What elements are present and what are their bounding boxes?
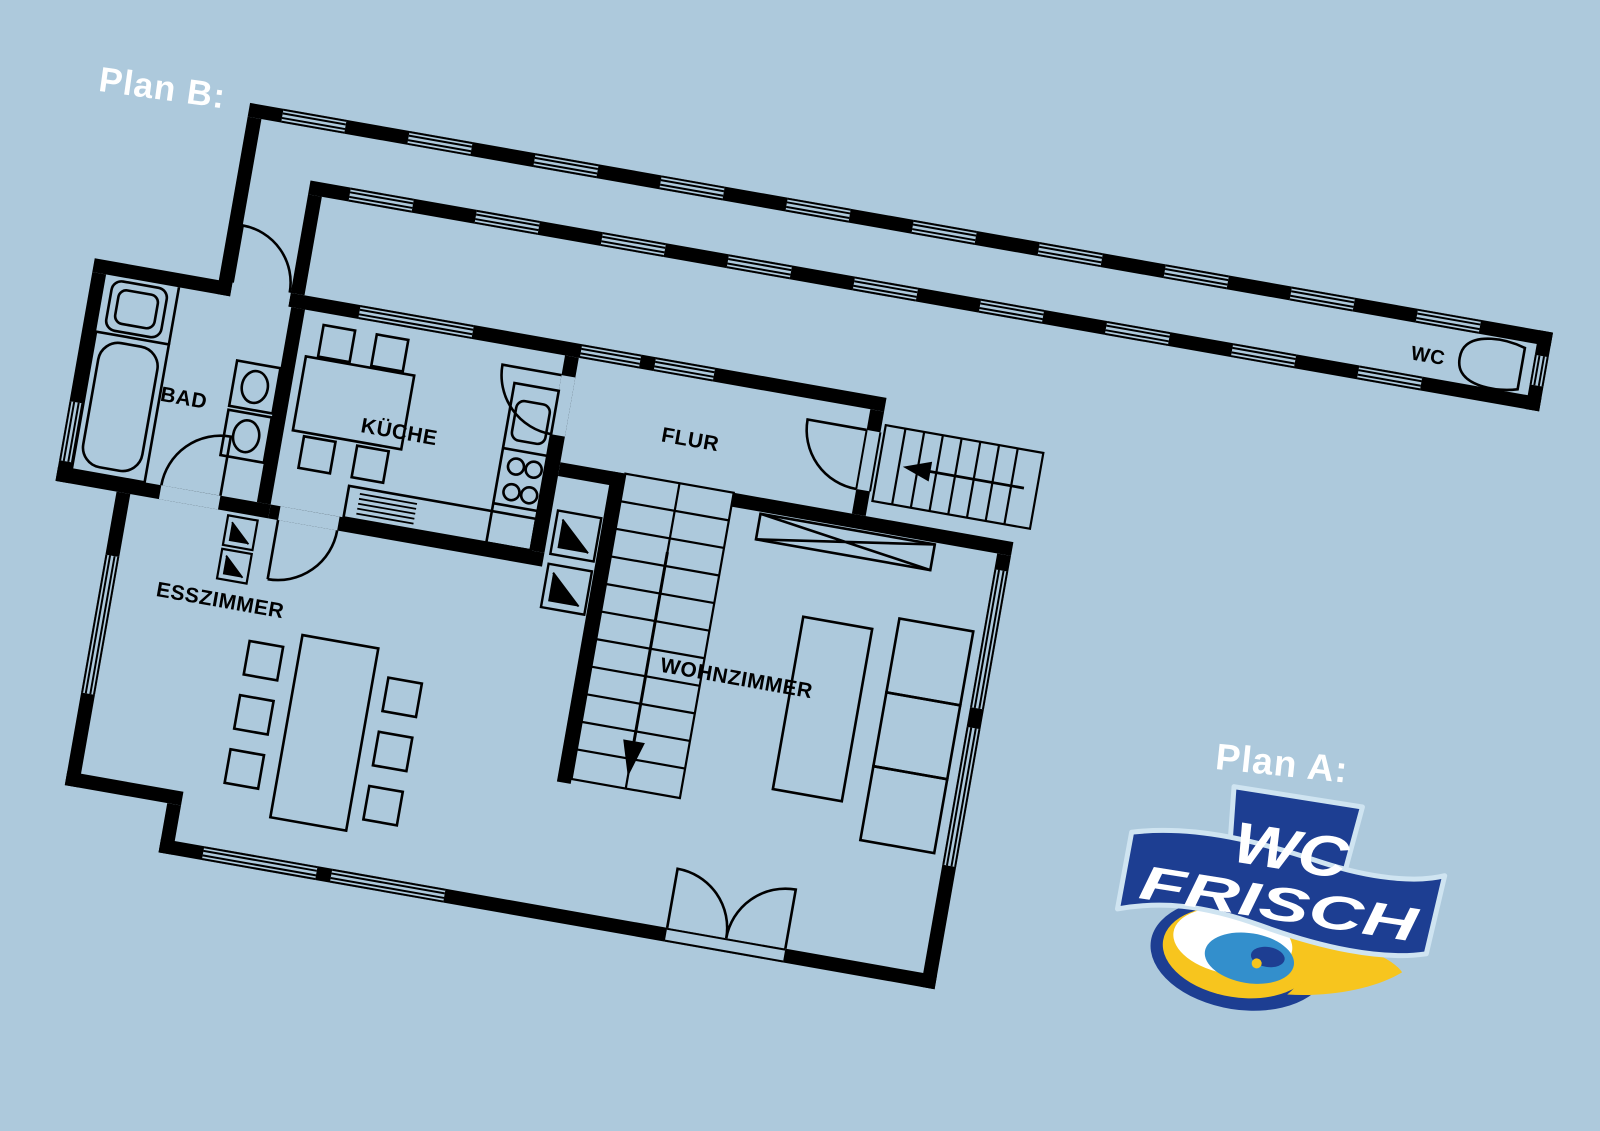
- kitchen-sink: [511, 400, 551, 445]
- washbasin: [105, 280, 169, 339]
- kueche-esszimmer-door: [268, 520, 338, 590]
- dining-chair: [244, 641, 283, 680]
- doors: [101, 219, 893, 948]
- dining-chair: [225, 749, 264, 788]
- stove-burner: [520, 486, 539, 505]
- dining-table: [270, 635, 378, 831]
- stairs-down-arrow: [617, 739, 645, 778]
- toilet: [229, 361, 280, 414]
- dining-chair: [373, 732, 412, 771]
- kitchen-chair: [298, 436, 335, 473]
- advertisement: BAD KÜCHE FLUR ESSZIMMER WOHNZIMMER WC W…: [0, 0, 1600, 1131]
- kitchen-chair: [352, 446, 389, 483]
- label-bad: BAD: [159, 383, 209, 414]
- bad-door: [161, 426, 231, 496]
- front-door: [797, 419, 867, 489]
- label-flur: FLUR: [660, 424, 721, 457]
- wc-frisch-logo: WC FRISCH: [1105, 772, 1454, 1039]
- kitchen-chair: [371, 334, 408, 371]
- sofa-cushion: [886, 618, 973, 705]
- stove-burner: [507, 457, 526, 476]
- dishwasher-hatch: [356, 494, 417, 524]
- coffee-table: [773, 617, 872, 801]
- kitchen-chair: [318, 325, 355, 362]
- dining-chair: [363, 786, 402, 825]
- entry-stairs: [872, 425, 1043, 529]
- stove-burner: [524, 460, 543, 479]
- label-esszimmer: ESSZIMMER: [154, 578, 285, 623]
- floor-plan-canvas: BAD KÜCHE FLUR ESSZIMMER WOHNZIMMER WC W…: [0, 0, 1600, 1131]
- staircase: [572, 474, 734, 798]
- dining-chair: [382, 678, 421, 717]
- dining-chair: [234, 695, 273, 734]
- stove-burner: [502, 483, 521, 502]
- label-wc: WC: [1409, 342, 1447, 370]
- sofa-cushion: [860, 766, 947, 853]
- kueche-flur-door: [492, 365, 562, 435]
- corridor-toilet: [1455, 333, 1525, 393]
- label-wohnzimmer: WOHNZIMMER: [659, 654, 815, 703]
- dining-furniture: [220, 626, 426, 839]
- corridor-entry-door: [233, 225, 300, 292]
- sofa-cushion: [873, 692, 960, 779]
